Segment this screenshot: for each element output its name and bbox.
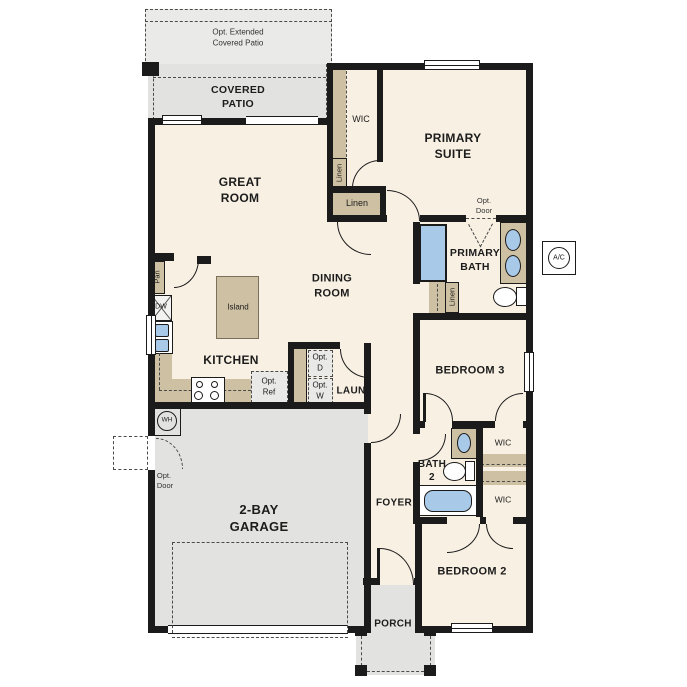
label-line: Door: [157, 481, 173, 491]
label-line: DINING: [312, 271, 352, 286]
wall: [364, 402, 371, 414]
label-line: PRIMARY: [425, 131, 482, 147]
primary-suite-window: [424, 60, 480, 70]
label-line: Opt.: [312, 352, 327, 363]
pantry-label: Pan: [153, 270, 162, 283]
stoop-dash-right: [430, 636, 431, 666]
wic3-shelf: [481, 454, 526, 467]
bedroom3-label: BEDROOM 3: [435, 364, 504, 379]
wall: [452, 421, 495, 428]
porch-post-tl: [355, 626, 367, 636]
wall: [327, 70, 333, 222]
opt-washer-label: Opt. W: [312, 380, 327, 401]
bathtub-basin: [424, 490, 472, 512]
opt-door-primary-gap: [466, 218, 496, 219]
dining-room-label: DINING ROOM: [312, 271, 352, 300]
primary-sink-2: [505, 255, 521, 277]
great-room-label: GREAT ROOM: [219, 175, 262, 207]
wall: [476, 428, 483, 517]
label-line: Door: [476, 206, 492, 216]
label-line: Opt.: [157, 471, 173, 481]
porch-post-bl: [355, 665, 367, 676]
wall: [288, 342, 294, 407]
wall: [413, 320, 420, 421]
primary-sink-1: [505, 229, 521, 251]
wall: [413, 222, 420, 284]
primary-bath-label: PRIMARY BATH: [450, 247, 500, 275]
opt-door-gap: [148, 436, 155, 470]
kitchen-window: [146, 315, 156, 355]
linen-closet-label: Linen: [346, 198, 368, 210]
burner-1: [196, 381, 203, 388]
label-line: 2: [418, 471, 446, 484]
bath2-label: BATH 2: [418, 458, 446, 484]
label-line: Ref: [261, 387, 276, 398]
opt-ref-label: Opt. Ref: [261, 376, 276, 397]
floor-plan: Opt. Extended Covered Patio COVERED PATI…: [0, 0, 687, 687]
wall: [413, 428, 420, 434]
wall: [414, 578, 422, 585]
bedroom2-label: BEDROOM 2: [437, 565, 506, 580]
opt-dryer-label: Opt. D: [312, 352, 327, 373]
wic-primary-shelf: [333, 70, 346, 158]
wall: [420, 215, 466, 222]
label-line: PRIMARY: [450, 247, 500, 261]
great-room-window: [162, 115, 202, 125]
water-heater-label: WH: [162, 417, 173, 426]
opt-door-garage-label: Opt. Door: [157, 471, 173, 491]
wall: [526, 63, 533, 633]
wall: [413, 313, 533, 320]
wic2-shelf: [481, 471, 526, 485]
label-line: ROOM: [219, 191, 262, 207]
burner-4: [210, 391, 219, 400]
patio-dash-top: [153, 77, 326, 78]
bath2-toilet-bowl: [443, 462, 466, 481]
dishwasher-label: DW: [155, 302, 167, 311]
label-line: BATH: [450, 261, 500, 275]
bedroom2-window: [451, 623, 493, 633]
stoop-dash-left: [361, 636, 362, 666]
wall: [197, 256, 211, 264]
ac-label: A/C: [553, 253, 565, 262]
patio-roof-line: [145, 21, 332, 22]
linen-wic-label: Linen: [335, 164, 344, 182]
label-line: Covered Patio: [212, 38, 263, 49]
wall: [148, 253, 174, 261]
label-line: Opt.: [312, 380, 327, 391]
wall: [415, 524, 422, 626]
wall: [413, 421, 425, 428]
bedroom3-window: [524, 352, 534, 392]
sink-basin-1: [155, 324, 169, 337]
wall: [364, 443, 371, 633]
label-line: W: [312, 391, 327, 402]
bath2-sink: [457, 433, 471, 453]
primary-toilet-bowl: [493, 287, 517, 307]
porch-label: PORCH: [374, 617, 412, 630]
label-line: BATH: [418, 458, 446, 471]
label-line: COVERED: [211, 84, 265, 98]
shower: [419, 224, 447, 282]
patio-post: [142, 62, 159, 76]
kitchen-label: KITCHEN: [203, 353, 258, 369]
covered-patio-label: COVERED PATIO: [211, 84, 265, 112]
patio-slider-door: [246, 116, 318, 125]
garage-label: 2-BAY GARAGE: [230, 501, 289, 535]
opt-extended-patio-label: Opt. Extended Covered Patio: [212, 27, 263, 48]
sink-basin-2: [155, 339, 169, 352]
wic2-shelf-rod: [481, 481, 526, 482]
wall: [523, 421, 533, 428]
label-line: PATIO: [211, 98, 265, 112]
burner-2: [211, 381, 218, 388]
label-line: 2-BAY: [230, 501, 289, 518]
wall: [413, 517, 447, 524]
wall: [148, 118, 155, 633]
label-line: GARAGE: [230, 518, 289, 535]
label-line: Opt. Extended: [212, 27, 263, 38]
wall: [513, 517, 533, 524]
wall: [288, 342, 340, 349]
label-line: D: [312, 363, 327, 374]
island-label: Island: [227, 303, 248, 314]
wic-primary-shelf-edge: [346, 71, 347, 157]
label-line: Opt.: [476, 196, 492, 206]
wic3-shelf-rod: [481, 464, 526, 465]
porch-post-br: [424, 665, 436, 676]
linen-bath-shelf-edge: [437, 284, 438, 311]
wall: [496, 215, 533, 222]
garage-door-swing: [172, 542, 348, 633]
foyer-label: FOYER: [376, 496, 412, 509]
opt-door-primary-label: Opt. Door: [476, 196, 492, 216]
wic-primary-label: WIC: [352, 114, 370, 126]
primary-suite-label: PRIMARY SUITE: [425, 131, 482, 163]
stoop-dash-bottom: [367, 671, 424, 672]
label-line: ROOM: [312, 286, 352, 301]
label-line: GREAT: [219, 175, 262, 191]
label-line: SUITE: [425, 147, 482, 163]
wall: [480, 517, 486, 524]
porch-post-tr: [424, 626, 436, 636]
burner-3: [194, 391, 203, 400]
laundry-cabinet: [292, 348, 307, 403]
label-line: Opt.: [261, 376, 276, 387]
wall: [380, 186, 386, 222]
bath2-toilet-tank: [465, 461, 475, 481]
opt-garage-door-stoop: [113, 436, 148, 470]
wic-bed2-label: WIC: [495, 494, 512, 505]
wall: [148, 402, 370, 409]
wall: [327, 215, 387, 222]
wic-bed3-label: WIC: [495, 437, 512, 448]
counter-dash-v: [159, 353, 160, 390]
garage-door-dash: [172, 637, 348, 638]
laundry-label: LAUN: [337, 384, 366, 397]
wall: [377, 70, 383, 162]
linen-bath-label: Linen: [448, 288, 457, 306]
